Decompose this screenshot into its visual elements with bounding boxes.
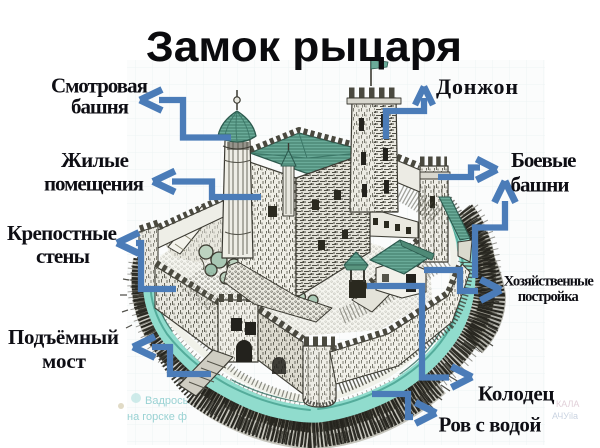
svg-text:Замок рыцаря: Замок рыцаря xyxy=(146,23,462,71)
svg-text:мост: мост xyxy=(42,349,87,373)
svg-text:Жилые: Жилые xyxy=(61,148,129,172)
svg-text:башни: башни xyxy=(511,173,570,197)
svg-text:Ров с водой: Ров с водой xyxy=(439,413,542,437)
svg-text:стены: стены xyxy=(36,244,90,268)
svg-text:башня: башня xyxy=(71,95,129,119)
svg-text:Крепостные: Крепостные xyxy=(7,221,117,245)
svg-text:постройка: постройка xyxy=(518,289,580,305)
svg-text:КАЛА: КАЛА xyxy=(556,399,579,409)
svg-text:АЧУіla: АЧУіla xyxy=(552,411,578,421)
svg-text:Подъёмный: Подъёмный xyxy=(8,325,119,349)
svg-text:на горске ф: на горске ф xyxy=(127,411,187,423)
svg-text:Вадросы: Вадросы xyxy=(145,395,191,407)
svg-text:Колодец: Колодец xyxy=(478,382,555,406)
svg-text:Боевые: Боевые xyxy=(511,148,577,172)
svg-text:Хозяйственные: Хозяйственные xyxy=(504,273,595,289)
svg-text:помещения: помещения xyxy=(44,172,144,196)
svg-text:Донжон: Донжон xyxy=(436,74,518,99)
